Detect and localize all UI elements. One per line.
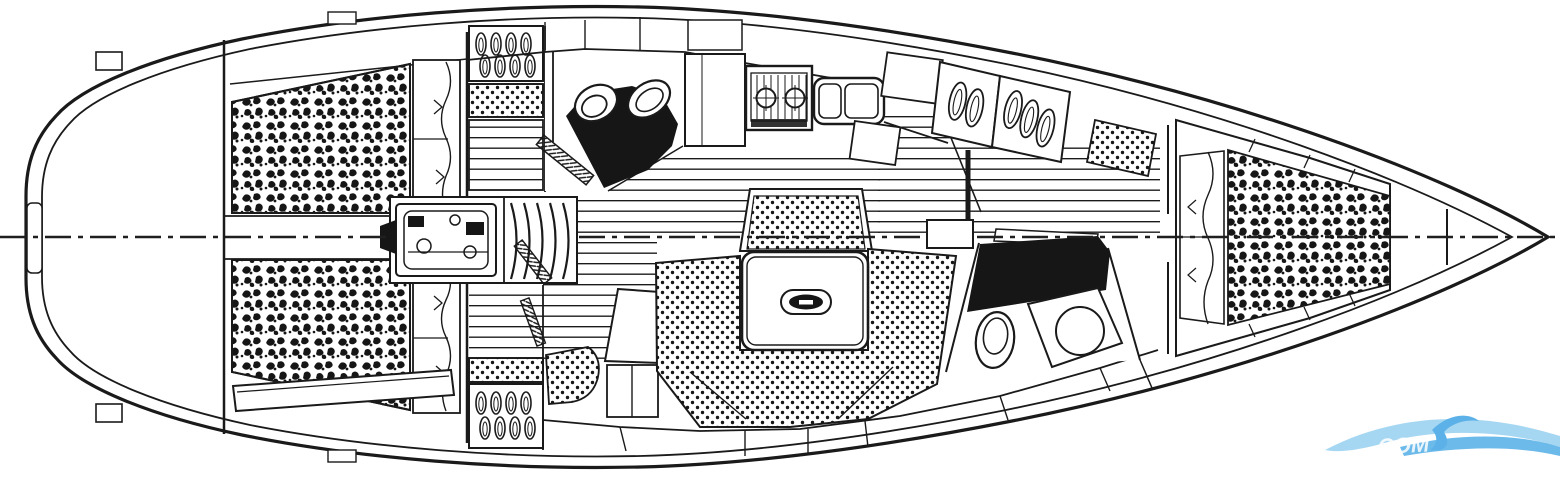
watermark-text: COM <box>1377 431 1430 459</box>
deck-step-notch <box>328 450 356 462</box>
counter-section <box>850 121 901 165</box>
hanging-locker-icon <box>932 62 1000 147</box>
watermark-wave-logo: COM <box>1325 416 1560 459</box>
hanging-locker-icon <box>469 384 543 448</box>
table-handle <box>781 290 831 314</box>
hanging-locker-icon <box>992 76 1070 162</box>
dining-table <box>742 252 868 350</box>
forward-head <box>946 229 1152 388</box>
bulkhead <box>1168 122 1176 356</box>
two-burner-stove-icon <box>746 66 812 130</box>
engine-icon <box>380 204 496 276</box>
transom-step-notch <box>96 52 122 70</box>
refrigerator-counter <box>685 54 745 146</box>
seat-cushion-dots <box>469 84 543 117</box>
deck-step-notch <box>328 12 356 24</box>
locker-divider <box>1000 396 1008 420</box>
dresser-shelf-lines <box>469 120 543 190</box>
bench-settee <box>740 189 872 251</box>
counter-section <box>881 52 943 103</box>
locker-divider <box>620 427 626 451</box>
locker-divider <box>1140 360 1152 388</box>
seat-cushion-dots <box>469 358 543 382</box>
galley-locker <box>688 20 742 50</box>
transom-step-notch <box>96 404 122 422</box>
yacht-floor-plan-image: COM <box>0 0 1560 478</box>
mast-step-box <box>927 220 973 248</box>
double-sink-icon <box>814 78 884 124</box>
